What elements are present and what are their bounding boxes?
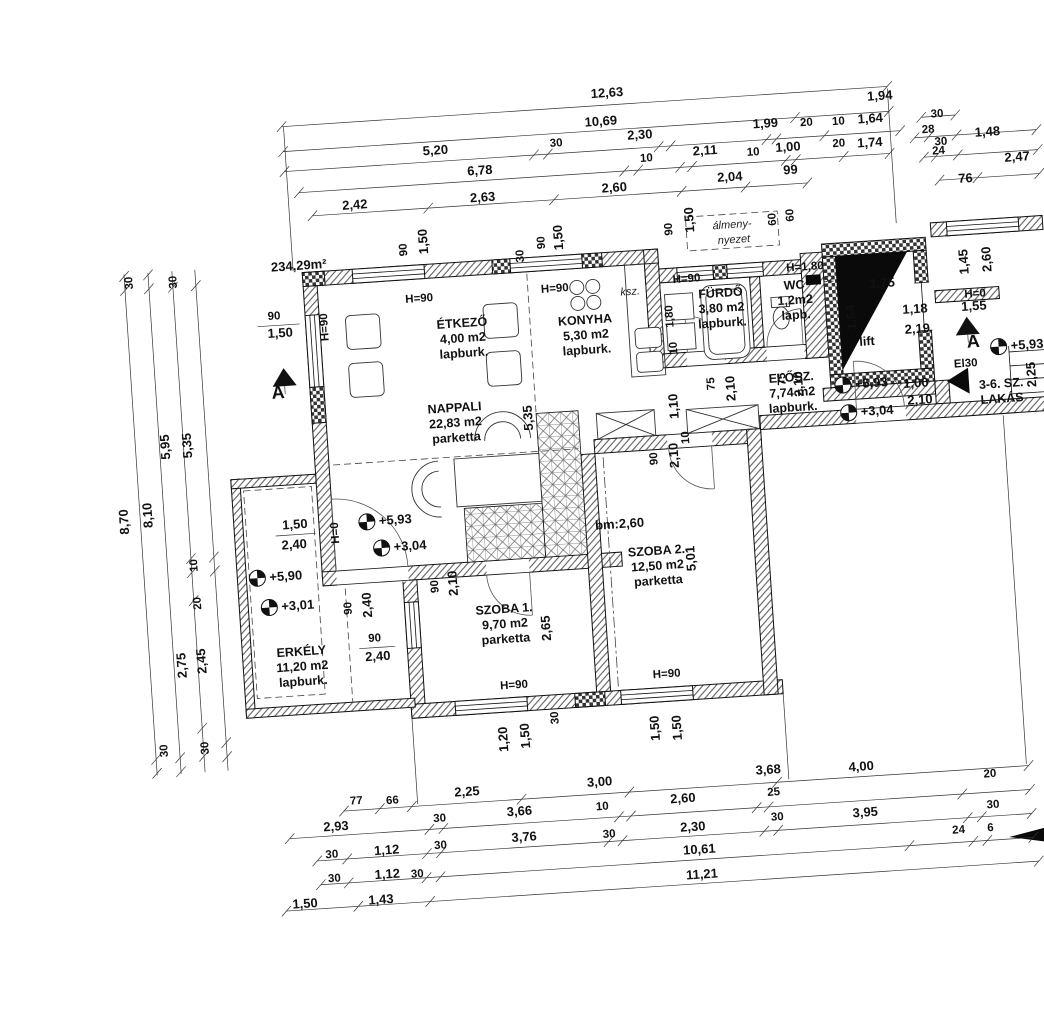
- dim-label: 2,11: [692, 142, 718, 159]
- dim-label: 20: [800, 116, 814, 129]
- floorplan-page: 234,29m² álmeny- nyezet ksz. sz El30 bm:…: [0, 0, 1044, 1024]
- dim-label: 2,42: [342, 196, 368, 213]
- dim-label: 25: [767, 786, 781, 799]
- dim-label: 90: [368, 632, 382, 645]
- dim-label: 30: [158, 744, 171, 758]
- window: [352, 265, 425, 284]
- dim-label: 2,60: [978, 246, 995, 272]
- dim-label: 30: [514, 249, 527, 263]
- ksz-label: ksz.: [620, 285, 640, 298]
- dim-label: 1,75: [869, 274, 895, 291]
- dim-label: 1,50: [282, 516, 308, 533]
- dim-label: 76: [958, 170, 973, 186]
- dim-label: 90: [648, 452, 661, 466]
- chair: [345, 314, 381, 350]
- dim-label: 28: [921, 123, 935, 136]
- dim-label: 30: [549, 711, 562, 725]
- level-label: +5,93: [1010, 336, 1044, 353]
- vent-mark: [806, 274, 822, 285]
- window: [455, 697, 528, 716]
- dim-label: 20: [832, 137, 846, 150]
- dim-label: 1,45: [955, 249, 972, 275]
- sink: [635, 327, 662, 349]
- room-label: parketta: [634, 572, 684, 589]
- dim-label: 90: [342, 602, 355, 616]
- dim-label: 2,30: [627, 126, 653, 143]
- dimension-chain: [321, 837, 1033, 884]
- dim-label: H=90: [500, 679, 529, 693]
- dim-label: 10: [596, 801, 610, 814]
- north-arrow-icon: [1005, 774, 1044, 893]
- dim-label: 1,94: [867, 87, 894, 104]
- dim-label: 2,40: [359, 592, 376, 618]
- dim-label: 2,10: [722, 375, 739, 401]
- dim-label: 10: [640, 152, 654, 165]
- floorplan-canvas: 234,29m² álmeny- nyezet ksz. sz El30 bm:…: [0, 0, 1044, 1024]
- window: [946, 217, 1019, 236]
- dim-label: 30: [771, 811, 785, 824]
- room-label: lapb.: [781, 307, 811, 323]
- dim-label: 2,10: [665, 442, 682, 468]
- level-label: +3,04: [860, 402, 895, 419]
- dim-label: 2,25: [454, 783, 480, 800]
- room-label: WC: [783, 277, 805, 292]
- dim-label: H=90: [318, 313, 332, 342]
- suspended-ceiling-label: álmeny-: [712, 218, 752, 233]
- dim-label: 75: [705, 376, 718, 390]
- dim-label: 30: [433, 812, 447, 825]
- dim-label: 4,00: [848, 758, 874, 775]
- dim-label: 2,47: [1004, 148, 1030, 165]
- room-label: 3-6. SZ.: [978, 375, 1023, 392]
- dimension-chain: [290, 790, 1030, 839]
- dim-label: 1,55: [961, 297, 987, 314]
- dim-label: 2,60: [670, 790, 696, 807]
- dim-label: 2,40: [365, 648, 391, 665]
- dim-label: 90: [267, 310, 281, 323]
- suspended-ceiling-label: nyezet: [717, 233, 751, 247]
- room-label: lift: [859, 334, 876, 349]
- cooktop-burner: [570, 296, 585, 311]
- dim-label: H=90: [652, 667, 681, 681]
- dim-label: 5,35: [179, 433, 196, 459]
- room-label: ELŐSZ.: [768, 368, 814, 386]
- dim-label: 1,80: [663, 305, 676, 328]
- dim-label: 24: [952, 824, 966, 837]
- dim-label: 2,60: [601, 179, 627, 196]
- sz-label: sz: [823, 272, 835, 285]
- dim-label: 90: [429, 580, 442, 594]
- window: [404, 602, 421, 649]
- dim-label: 1,50: [267, 324, 293, 341]
- chair: [483, 302, 519, 338]
- dim-label: 2,10: [444, 570, 461, 596]
- room-label: FÜRDŐ: [698, 283, 744, 301]
- dim-label: 1,48: [974, 123, 1000, 140]
- dim-label: 1,43: [368, 891, 394, 908]
- room-label: 1,2m2: [777, 292, 813, 308]
- dim-label: 2,04: [717, 168, 744, 185]
- dim-label: H=0: [329, 522, 342, 544]
- dim-label: 8,10: [139, 502, 156, 528]
- level-label: +5,93: [854, 374, 888, 391]
- dim-label: 20: [191, 596, 204, 610]
- dim-label: 1,10: [665, 393, 682, 419]
- dim-label: 11,21: [686, 865, 719, 882]
- dim-label: 2,19: [904, 320, 930, 337]
- ceiling-height-label: bm:2,60: [595, 515, 645, 533]
- dimension-chain: [312, 183, 807, 216]
- dim-label: 1,12: [374, 865, 400, 882]
- dim-label: 30: [986, 799, 1000, 812]
- dim-label: 30: [325, 849, 339, 862]
- dim-label: 30: [434, 839, 448, 852]
- dim-label: 99: [783, 162, 798, 178]
- dim-label: 2,75: [173, 652, 190, 678]
- dim-label: 3,95: [852, 804, 878, 821]
- dim-label: 30: [328, 872, 342, 885]
- dim-label: 1,50: [292, 895, 318, 912]
- room-label: parketta: [481, 630, 531, 647]
- dim-label: 90: [663, 222, 676, 236]
- dim-label: 2,45: [193, 648, 210, 674]
- dim-label: 1,00: [775, 138, 801, 155]
- dim-label: 1,99: [752, 115, 778, 132]
- section-label: A: [271, 382, 285, 403]
- dimension-chain: [939, 174, 1039, 181]
- dim-label: 90: [398, 243, 411, 257]
- dim-label: 30: [123, 276, 136, 290]
- dim-label: 5,20: [422, 142, 448, 159]
- table: [454, 453, 542, 507]
- room-label: lapburk.: [279, 673, 328, 690]
- dim-label: 10: [188, 559, 201, 573]
- cooktop-burner: [585, 279, 600, 294]
- dim-label: 3,00: [586, 773, 612, 790]
- dim-label: 10,69: [584, 112, 617, 129]
- dim-label: 2,93: [323, 818, 349, 835]
- dim-label: 5,35: [520, 405, 537, 431]
- cooktop-burner: [569, 280, 584, 295]
- dim-label: 6,78: [467, 162, 493, 179]
- dim-label: 10: [680, 431, 693, 445]
- dim-label: 10,61: [683, 841, 716, 858]
- dim-label: 5,95: [157, 434, 174, 460]
- dim-label: 10: [668, 341, 681, 355]
- dim-label: 1,50: [517, 723, 534, 749]
- dim-label: 30: [602, 828, 616, 841]
- dim-label: 1,64: [857, 110, 884, 127]
- chair: [486, 350, 522, 386]
- dim-label: 60: [766, 213, 779, 227]
- chair: [348, 362, 384, 398]
- level-label: +5,93: [378, 511, 412, 528]
- dim-label: 10: [746, 146, 760, 159]
- sink: [636, 351, 663, 373]
- room-label: LAKÁS: [980, 389, 1024, 407]
- dim-label: 1,50: [681, 207, 698, 233]
- dim-label: 1,64: [843, 303, 860, 330]
- dim-label: 30: [167, 275, 180, 289]
- dim-label: 3,66: [506, 803, 532, 820]
- dim-label: 30: [199, 741, 212, 755]
- dim-label: 8,70: [116, 509, 133, 535]
- dim-label: 20: [983, 768, 997, 781]
- dim-label: 1,18: [902, 300, 928, 317]
- dim-label: 77: [350, 795, 364, 808]
- cooktop-burner: [586, 295, 601, 310]
- dim-label: 2,63: [469, 189, 495, 206]
- room-label: lapburk.: [439, 344, 488, 361]
- dim-label: 2,65: [538, 615, 555, 641]
- dim-label: 2,25: [1023, 361, 1040, 387]
- dim-label: 3,76: [511, 828, 537, 845]
- window: [621, 686, 694, 705]
- dim-label: 1,50: [668, 715, 685, 741]
- dim-label: H=90: [405, 292, 434, 306]
- dim-label: H=1,80: [786, 260, 824, 274]
- dim-label: 2,40: [281, 536, 307, 553]
- level-label: +5,90: [269, 567, 303, 584]
- dimension-chain: [284, 131, 900, 172]
- dim-label: H=90: [672, 272, 701, 286]
- level-label: +3,04: [393, 537, 428, 554]
- dim-label: 30: [930, 108, 944, 121]
- dimension-chain: [299, 153, 890, 192]
- dim-label: 60: [784, 208, 797, 222]
- dim-label: 2,10: [907, 391, 933, 408]
- dim-label: 30: [411, 868, 425, 881]
- armchair: [410, 461, 442, 519]
- dim-label: 90: [535, 236, 548, 250]
- dim-label: 1,74: [857, 134, 884, 151]
- dim-label: 6: [987, 822, 994, 834]
- dim-label: 1,12: [374, 841, 400, 858]
- dim-label: 1,50: [415, 228, 432, 254]
- dim-label: 2,30: [680, 818, 706, 835]
- level-label: +3,01: [281, 597, 315, 614]
- dim-label: 1,50: [646, 715, 663, 741]
- el30-door-label: El30: [954, 357, 978, 371]
- dim-label: H=90: [541, 282, 570, 296]
- dim-label: 10: [832, 115, 846, 128]
- section-label: A: [966, 331, 980, 352]
- dim-label: 12,63: [590, 84, 623, 101]
- window: [727, 262, 764, 278]
- dim-label: 3,68: [755, 761, 781, 778]
- dim-label: 1,20: [495, 726, 512, 752]
- dim-label: 66: [386, 794, 400, 807]
- room-label: lapburk.: [562, 341, 611, 358]
- dim-label: 24: [932, 145, 946, 158]
- dim-label: 30: [549, 137, 563, 150]
- room-label: parketta: [432, 429, 482, 446]
- dim-label: 1,50: [550, 224, 567, 250]
- dim-label: 1,00: [903, 374, 929, 391]
- dimension-chain: [317, 813, 1031, 860]
